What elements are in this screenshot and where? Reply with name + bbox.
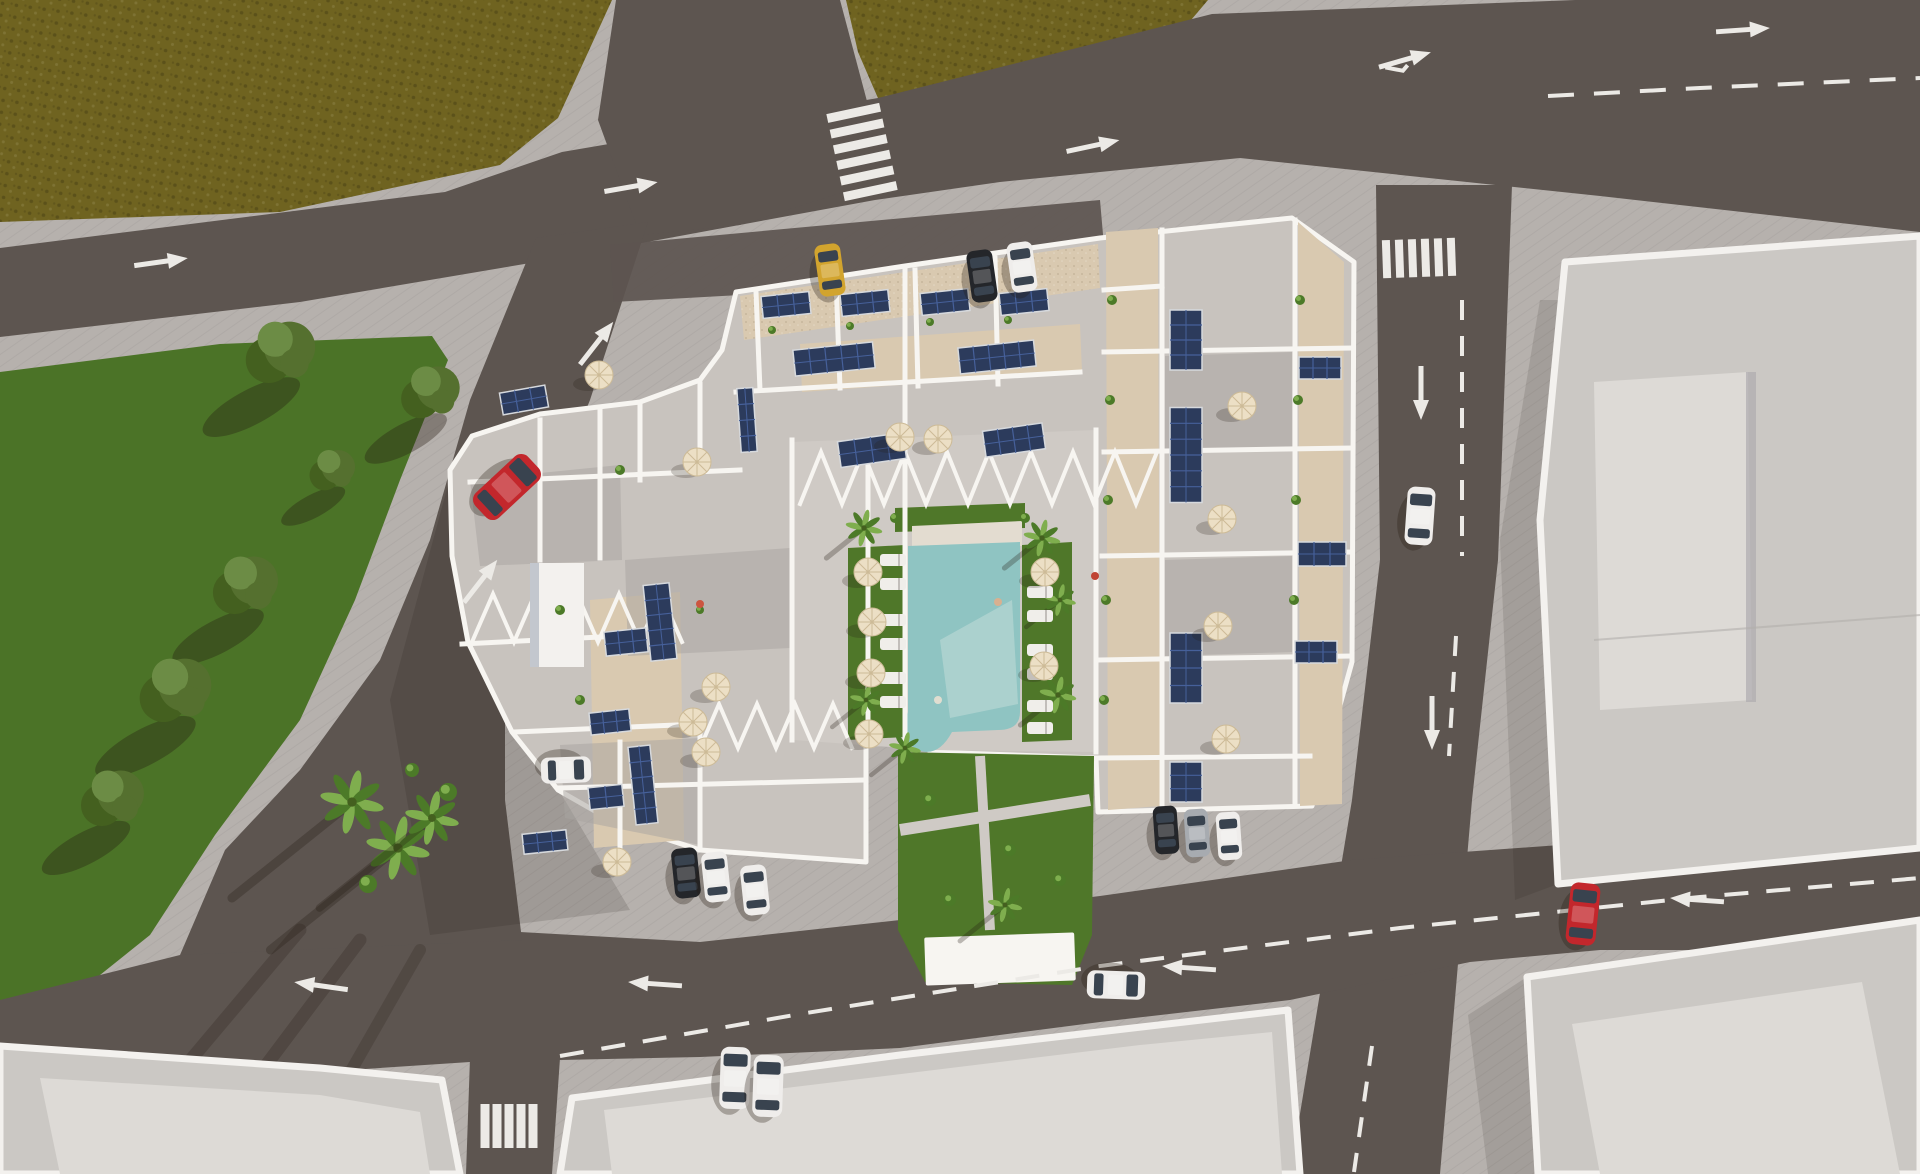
umbrella-pole xyxy=(936,437,940,441)
crosswalk-bar xyxy=(517,1104,526,1148)
crosswalk xyxy=(481,1104,538,1148)
umbrella-pole xyxy=(1216,624,1220,628)
sun-lounger xyxy=(880,696,906,708)
entrance-canopy-side xyxy=(530,563,539,667)
solar-panel xyxy=(1170,633,1202,703)
car-roof-highlight xyxy=(1189,827,1206,841)
lounger-body xyxy=(1027,610,1053,622)
crosswalk-bar xyxy=(1408,239,1417,277)
lounger-body xyxy=(880,554,906,566)
person xyxy=(1091,572,1099,580)
car-rear-window xyxy=(1158,839,1176,848)
umbrella-pole xyxy=(615,860,619,864)
crosswalk-bar xyxy=(1421,239,1430,277)
solar-panel xyxy=(588,784,624,809)
person xyxy=(994,598,1002,606)
planter xyxy=(555,605,565,615)
umbrella-pole xyxy=(1220,517,1224,521)
planter xyxy=(944,894,956,906)
car-windshield xyxy=(743,871,764,883)
car-windshield xyxy=(674,854,695,866)
planter-foliage xyxy=(576,696,581,701)
lounger-body xyxy=(880,638,906,650)
car-rear-window xyxy=(722,1092,746,1103)
tree-canopy xyxy=(430,389,454,413)
car-rear-window xyxy=(1221,845,1239,854)
palm-crown xyxy=(1002,902,1007,907)
umbrella-pole xyxy=(1043,570,1047,574)
person xyxy=(696,600,704,608)
planter-foliage xyxy=(1294,396,1299,401)
car-roof-highlight xyxy=(559,761,573,779)
car-roof-highlight xyxy=(1158,824,1175,838)
car-roof-highlight xyxy=(724,1070,747,1087)
building-r1-rooftop-block xyxy=(1594,372,1752,710)
planter xyxy=(1291,495,1301,505)
umbrella-pole xyxy=(870,620,874,624)
planter xyxy=(1020,513,1030,523)
car-rear-window xyxy=(548,760,557,780)
umbrella-pole xyxy=(866,570,870,574)
entrance-canopy xyxy=(538,563,584,667)
palm-crown xyxy=(347,797,356,806)
planter-foliage xyxy=(1108,296,1113,301)
crosswalk-bar xyxy=(1447,238,1456,276)
planter-foliage xyxy=(441,785,450,794)
solar-panel xyxy=(1299,357,1341,379)
palm-crown xyxy=(1055,692,1060,697)
solar-panel xyxy=(1170,762,1202,802)
umbrella-pole xyxy=(597,373,601,377)
car-rear-window xyxy=(1407,528,1430,539)
car-roof-highlight xyxy=(1108,975,1124,996)
planter xyxy=(439,783,457,801)
planter-foliage xyxy=(1055,875,1061,881)
building-r1-block-shadow xyxy=(1746,372,1756,702)
planter xyxy=(890,513,900,523)
tree-canopy xyxy=(245,582,272,609)
planter-foliage xyxy=(1005,317,1009,321)
planter xyxy=(1004,844,1016,856)
planter-foliage xyxy=(1104,496,1109,501)
planter-foliage xyxy=(556,606,561,611)
planter xyxy=(768,326,776,334)
person xyxy=(934,696,942,704)
car-roof-highlight xyxy=(757,1078,780,1095)
planter xyxy=(359,875,377,893)
tree-canopy xyxy=(332,468,351,487)
planter xyxy=(1054,874,1066,886)
crosswalk-bar xyxy=(1395,240,1404,278)
tree-canopy xyxy=(175,687,205,717)
solar-panel xyxy=(1170,310,1202,370)
planter-foliage xyxy=(1005,845,1011,851)
planter xyxy=(1107,295,1117,305)
car-roof-highlight xyxy=(820,263,840,279)
car-windshield xyxy=(704,858,725,870)
solar-panel xyxy=(761,292,811,319)
tree-canopy xyxy=(112,795,138,821)
car-roof-highlight xyxy=(1571,905,1595,923)
planter-foliage xyxy=(1292,496,1297,501)
sun-lounger xyxy=(1027,610,1053,622)
palm-crown xyxy=(428,814,436,822)
car-roof-highlight xyxy=(706,870,725,885)
lounger-body xyxy=(1027,700,1053,712)
planter-foliage xyxy=(1102,596,1107,601)
planter xyxy=(1101,595,1111,605)
palm-crown xyxy=(1058,598,1063,603)
planter xyxy=(1293,395,1303,405)
planter xyxy=(1289,595,1299,605)
car-windshield xyxy=(723,1054,747,1067)
planter xyxy=(575,695,585,705)
planter xyxy=(405,763,419,777)
crosswalk-bar xyxy=(505,1104,514,1148)
car-rear-window xyxy=(755,1100,779,1111)
service-block xyxy=(924,932,1076,985)
car-rear-window xyxy=(1189,842,1207,851)
planter xyxy=(926,318,934,326)
car-windshield xyxy=(1187,815,1206,826)
planter-foliage xyxy=(945,895,951,901)
sun-lounger xyxy=(1027,722,1053,734)
crosswalk-bar xyxy=(1434,238,1443,276)
crosswalk-bar xyxy=(481,1104,490,1148)
umbrella-pole xyxy=(1042,664,1046,668)
car-roof-highlight xyxy=(1221,830,1238,844)
planter-foliage xyxy=(616,466,621,471)
planter-foliage xyxy=(1296,296,1301,301)
car-roof-highlight xyxy=(676,866,695,881)
umbrella-pole xyxy=(898,435,902,439)
car-roof-highlight xyxy=(1409,508,1430,524)
gravel-right-west-column xyxy=(1106,228,1160,810)
solar-panel xyxy=(920,289,970,316)
solar-panel xyxy=(522,830,568,854)
crosswalk-bar xyxy=(1382,240,1391,278)
solar-panel xyxy=(604,628,648,656)
planter-foliage xyxy=(1290,596,1295,601)
planter-foliage xyxy=(406,764,413,771)
umbrella-pole xyxy=(714,685,718,689)
car-windshield xyxy=(756,1062,780,1075)
solar-panel xyxy=(1295,641,1337,663)
umbrella-pole xyxy=(1224,737,1228,741)
umbrella-pole xyxy=(1240,404,1244,408)
car-rear-window xyxy=(1094,973,1104,995)
solar-panel xyxy=(840,290,890,317)
palm-crown xyxy=(1039,535,1044,540)
solar-panel xyxy=(737,388,757,453)
planter-foliage xyxy=(1021,514,1026,519)
scene-canvas xyxy=(0,0,1920,1174)
planter-foliage xyxy=(1100,696,1105,701)
planter xyxy=(1004,316,1012,324)
umbrella-pole xyxy=(869,671,873,675)
planter xyxy=(1295,295,1305,305)
solar-panel xyxy=(1298,542,1346,566)
umbrella-pole xyxy=(867,732,871,736)
sun-lounger xyxy=(880,554,906,566)
car-windshield xyxy=(1126,974,1138,996)
planter-foliage xyxy=(927,319,931,323)
palm-crown xyxy=(864,698,869,703)
car-windshield xyxy=(1410,493,1433,506)
aerial-site-render xyxy=(0,0,1920,1174)
planter-foliage xyxy=(891,514,896,519)
umbrella-pole xyxy=(695,460,699,464)
planter xyxy=(846,322,854,330)
car-roof-highlight xyxy=(1012,260,1032,275)
crosswalk-bar xyxy=(529,1104,538,1148)
planter-foliage xyxy=(769,327,773,331)
sun-lounger xyxy=(880,638,906,650)
car-windshield xyxy=(1156,812,1175,823)
tree-canopy xyxy=(280,349,309,378)
solar-panel xyxy=(1170,408,1202,503)
car-roof-highlight xyxy=(972,269,992,285)
planter xyxy=(1105,395,1115,405)
planter-foliage xyxy=(1106,396,1111,401)
car-windshield xyxy=(1572,889,1597,904)
umbrella-pole xyxy=(691,720,695,724)
sun-lounger xyxy=(1027,700,1053,712)
lounger-body xyxy=(1027,722,1053,734)
solar-panel xyxy=(589,709,631,735)
planter-foliage xyxy=(361,877,370,886)
planter xyxy=(1103,495,1113,505)
lounger-body xyxy=(880,578,906,590)
umbrella-pole xyxy=(704,750,708,754)
car-windshield xyxy=(574,759,585,779)
planter xyxy=(924,794,936,806)
car-roof-highlight xyxy=(745,883,764,898)
palm-crown xyxy=(861,525,866,530)
lounger-body xyxy=(880,696,906,708)
crosswalk-bar xyxy=(493,1104,502,1148)
palm-crown xyxy=(903,746,908,751)
car-windshield xyxy=(1219,818,1238,829)
planter-foliage xyxy=(925,795,931,801)
planter xyxy=(1099,695,1109,705)
sun-lounger xyxy=(880,578,906,590)
planter-foliage xyxy=(847,323,851,327)
gravel-right-east-column xyxy=(1298,222,1344,806)
planter xyxy=(615,465,625,475)
